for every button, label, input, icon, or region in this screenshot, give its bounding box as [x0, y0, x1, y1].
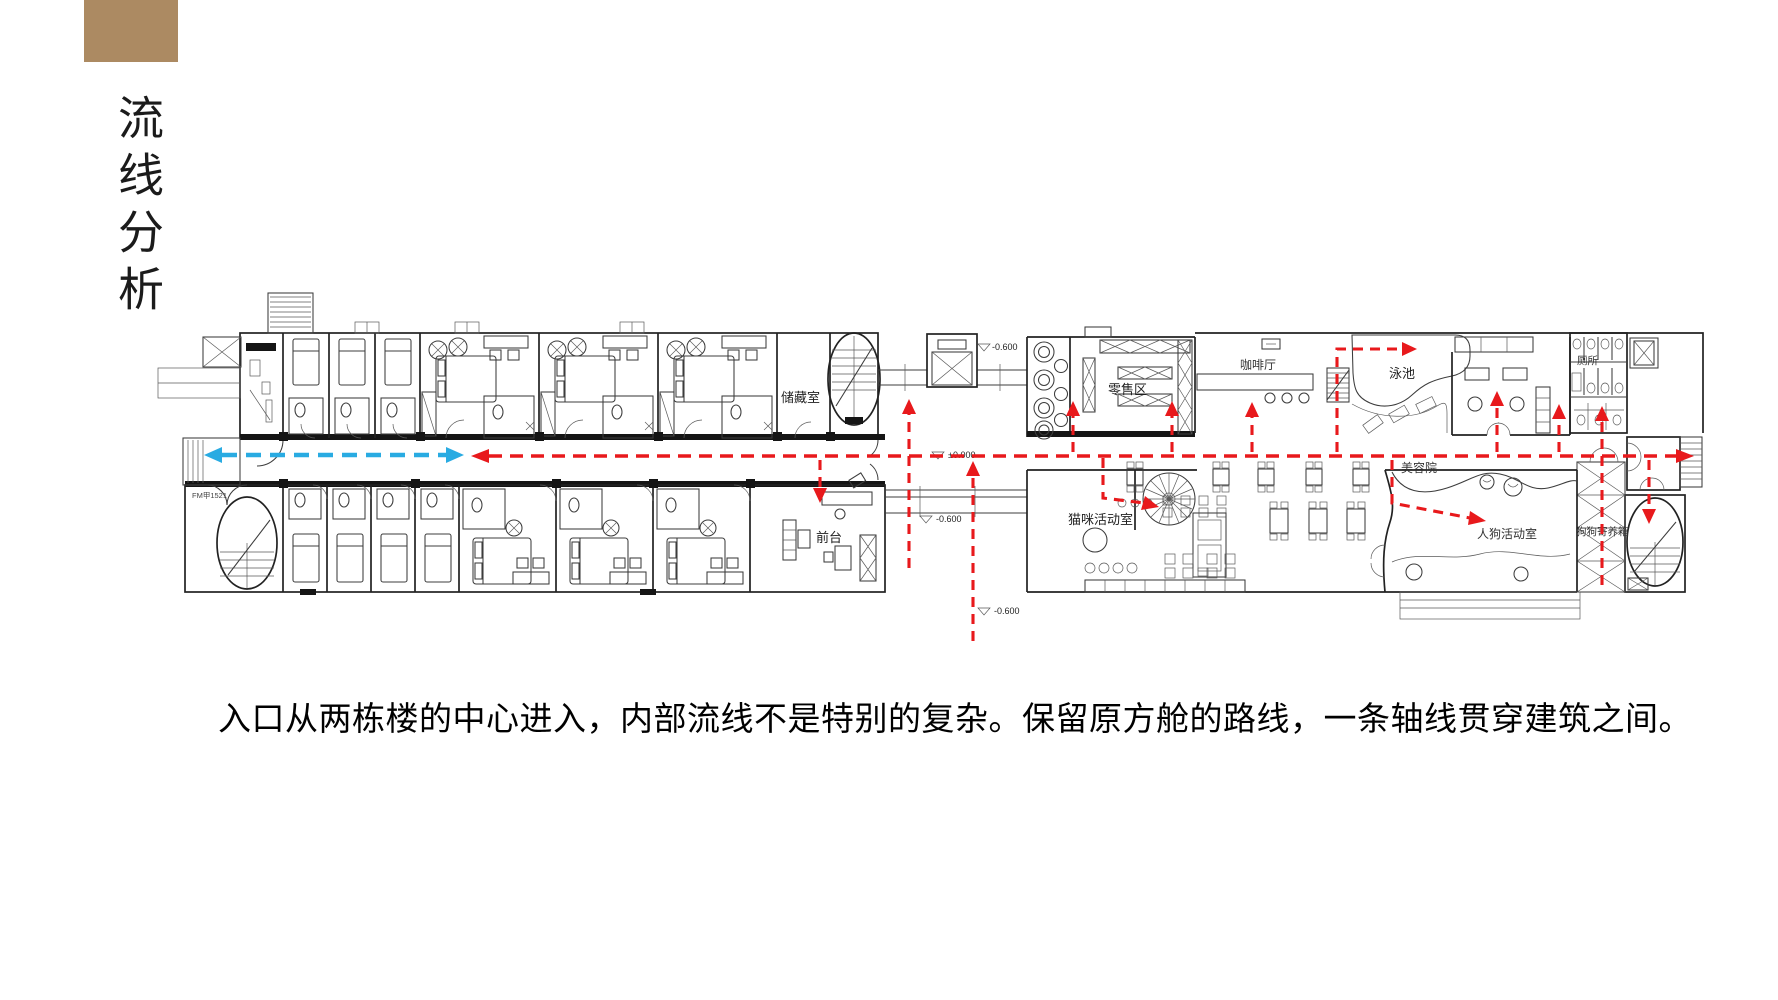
central-elevator-icon: [927, 334, 977, 387]
cafe-area: 咖啡厅: [1197, 339, 1349, 403]
central-link: -0.600 ±0.000 -0.600 -0.600: [878, 334, 1027, 616]
dog-activity-label: 人狗活动室: [1477, 526, 1537, 541]
level-south-bridge: -0.600: [936, 514, 962, 524]
north-small-rooms: [289, 333, 420, 438]
beauty-salon-label: 美容院: [1401, 460, 1437, 475]
caption-text: 入口从两栋楼的中心进入，内部流线不是特别的复杂。保留原方舱的路线，一条轴线贯穿建…: [218, 700, 1718, 737]
level-south-path: -0.600: [994, 606, 1020, 616]
cat-activity-room: 猫咪活动室: [1027, 470, 1385, 592]
north-guest-rooms: [422, 333, 777, 438]
east-elevator-icon: [1630, 338, 1658, 368]
storage-room-label: 储藏室: [781, 390, 820, 405]
pool-label: 泳池: [1389, 366, 1415, 381]
east-exit: [1627, 437, 1702, 490]
table-row-2: [1270, 502, 1365, 540]
slide: 流线分析: [0, 0, 1778, 1000]
level-top: -0.600: [992, 342, 1018, 352]
west-entry-stair: [183, 438, 283, 485]
retail-label: 零售区: [1108, 382, 1147, 397]
spa-room: [1452, 337, 1570, 435]
west-elevator-icon: [203, 337, 241, 367]
storage-room: 储藏室: [781, 333, 830, 438]
cafe-label: 咖啡厅: [1240, 357, 1276, 372]
utility-room: [246, 333, 283, 438]
window-marks: [355, 322, 644, 333]
toilet-label: 厕所: [1577, 355, 1599, 367]
flow-blue-axis: [204, 447, 464, 463]
table-row-1: [1127, 462, 1369, 492]
flow-red-axis: [471, 449, 1694, 463]
south-small-rooms: [289, 485, 459, 592]
front-desk-area: 前台: [783, 473, 876, 581]
northeast-oval-stair: [828, 333, 880, 425]
seating-area: [1085, 462, 1369, 592]
dog-boarding-strip: 狗狗寄养箱: [1576, 448, 1629, 592]
floor-plan: 储藏室 FM甲1521: [0, 0, 1778, 1000]
south-guest-rooms: [463, 485, 750, 592]
front-desk-label: 前台: [816, 530, 842, 545]
left-building: 储藏室 FM甲1521: [158, 293, 885, 595]
retail-area: 零售区: [1083, 337, 1195, 434]
cat-room-label: 猫咪活动室: [1068, 512, 1133, 527]
grooming-tubs: [1034, 337, 1070, 439]
north-stair-bump: [268, 293, 313, 333]
dog-activity-room: 美容院 人狗活动室: [1371, 460, 1580, 619]
fire-door-label: FM甲1521: [192, 491, 227, 500]
southwest-oval-stair: FM甲1521: [192, 485, 283, 592]
